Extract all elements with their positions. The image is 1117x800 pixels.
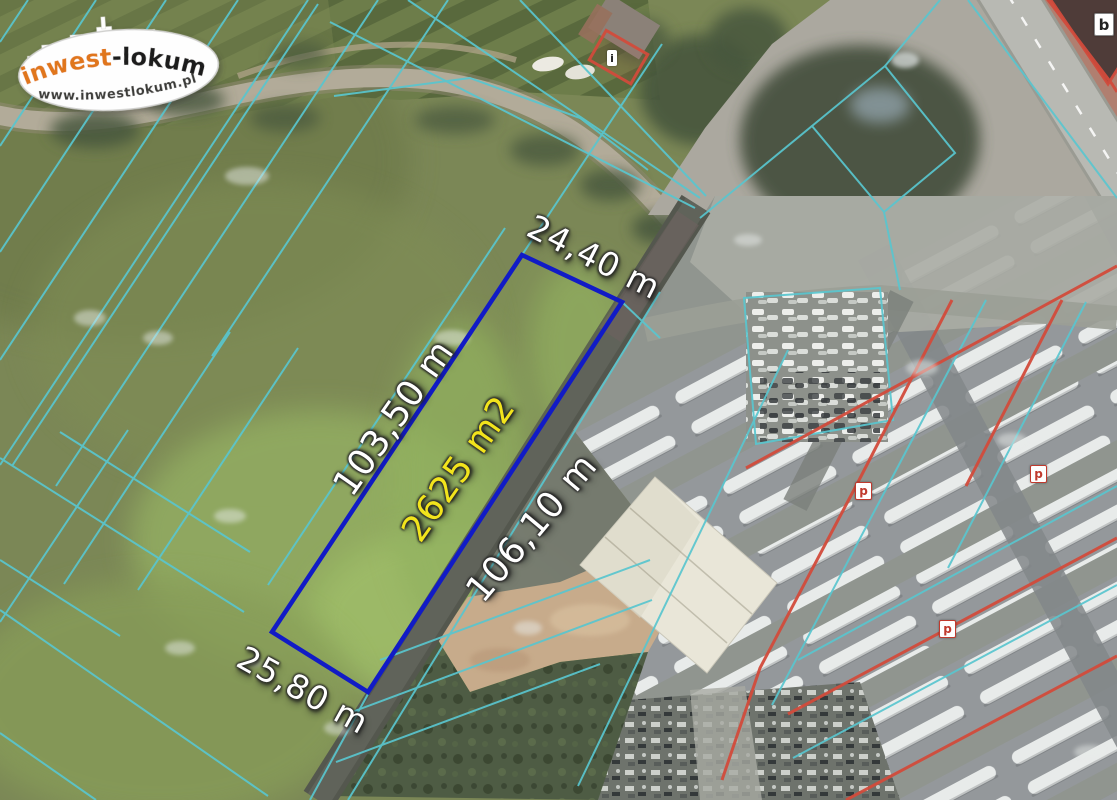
aerial-map: 24,40 m 103,50 m 2625 m2 106,10 m 25,80 … <box>0 0 1117 800</box>
map-badge-p: p <box>939 620 956 638</box>
map-badge-b: b <box>1094 13 1114 36</box>
map-badge-p: p <box>855 482 872 500</box>
map-badge-p: p <box>1030 465 1047 483</box>
junkyard-cars <box>746 292 888 442</box>
agency-logo-watermark: inwest-lokum www.inwestlokum.pl <box>6 4 231 122</box>
map-badge-i: i <box>607 50 617 66</box>
